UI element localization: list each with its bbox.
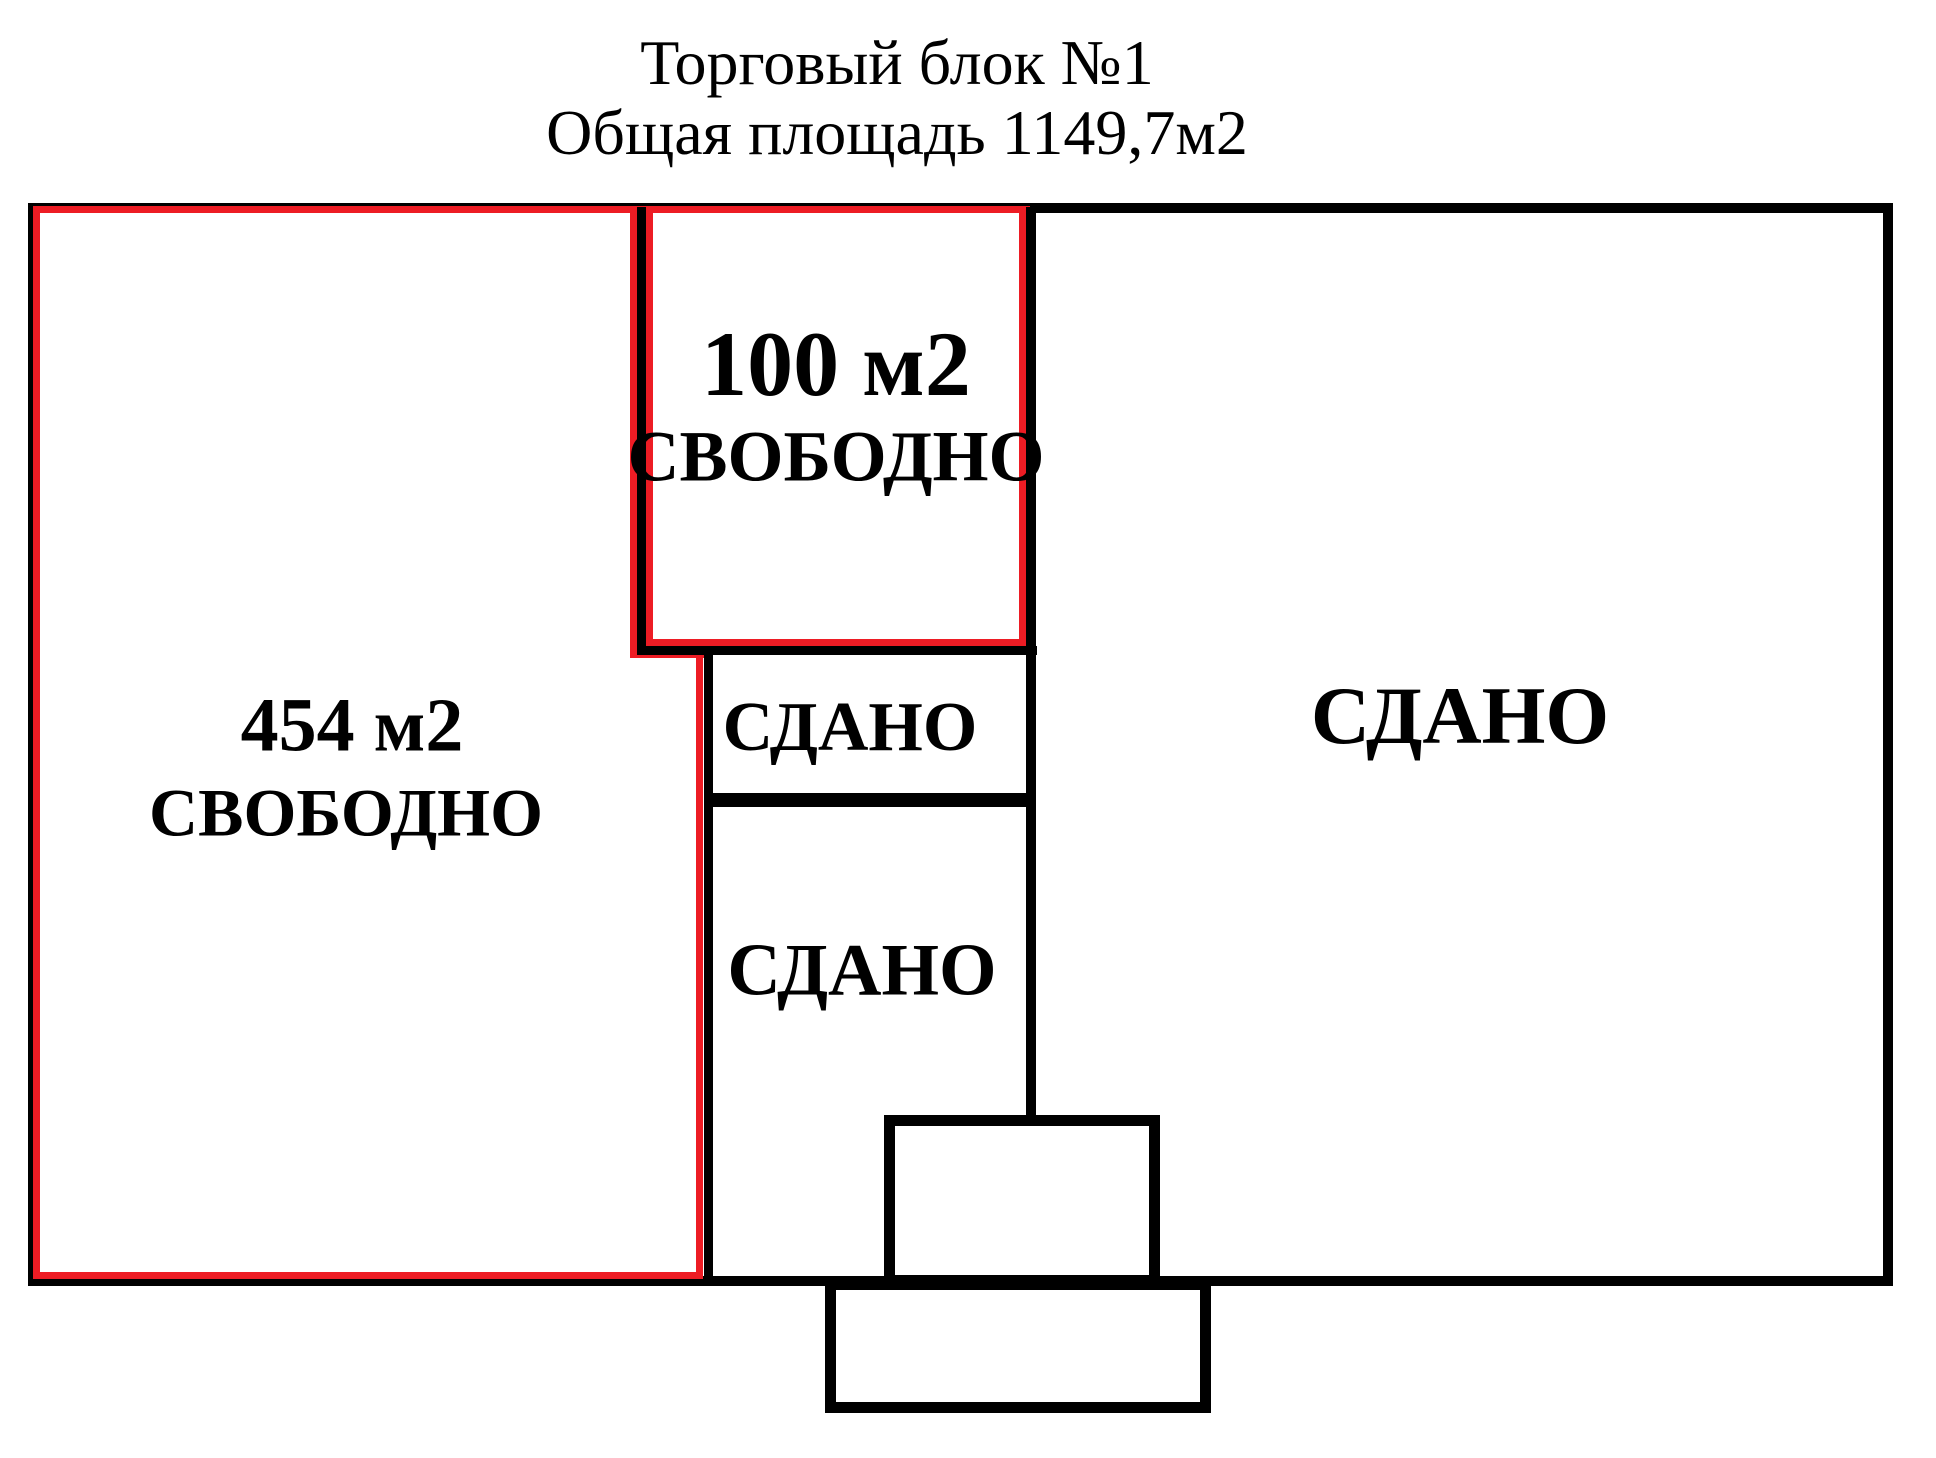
wall-partition-lower [704, 651, 713, 1281]
plan-title: Торговый блок №1 Общая площадь 1149,7м2 [0, 28, 1794, 168]
top-room-area-label: 100 м2 [701, 311, 971, 417]
middle-lower-room-status-label: СДАНО [727, 929, 996, 1014]
wall-divider-middle-rooms [708, 793, 1030, 807]
middle-upper-room-status-label: СДАНО [723, 688, 978, 768]
plan-title-line2: Общая площадь 1149,7м2 [0, 98, 1794, 168]
wall-main-vertical [1026, 207, 1036, 1122]
floor-plan: Торговый блок №1 Общая площадь 1149,7м2 … [0, 0, 1936, 1458]
vestibule-inner [884, 1115, 1160, 1286]
free-outline-top [33, 206, 1030, 213]
wall-below-top-room [637, 646, 1037, 655]
plan-title-line1: Торговый блок №1 [0, 28, 1794, 98]
free-outline-left-room-right-lower [696, 651, 703, 1279]
free-outline-top-room-bottom [646, 639, 1026, 646]
top-room-status-label: СВОБОДНО [627, 416, 1044, 499]
free-outline-left [33, 206, 40, 1279]
left-room-area-label: 454 м2 [241, 683, 464, 770]
right-room-status-label: СДАНО [1311, 669, 1609, 763]
left-room-status-label: СВОБОДНО [149, 774, 543, 853]
free-outline-bottom [33, 1272, 703, 1279]
vestibule-outer [825, 1279, 1211, 1413]
